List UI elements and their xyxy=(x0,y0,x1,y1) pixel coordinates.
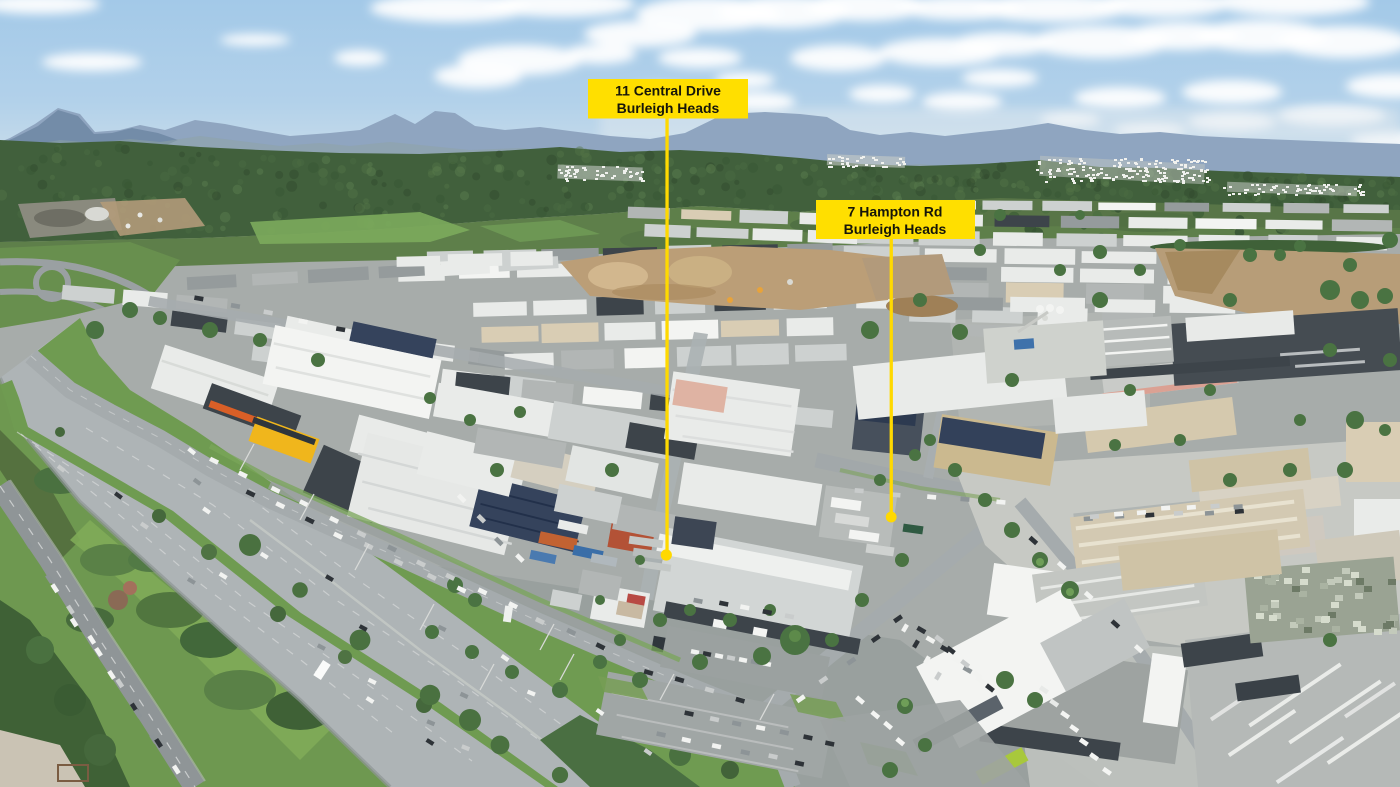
svg-text:Burleigh Heads: Burleigh Heads xyxy=(844,221,947,237)
svg-text:Burleigh Heads: Burleigh Heads xyxy=(617,100,720,116)
svg-text:11 Central Drive: 11 Central Drive xyxy=(615,83,721,99)
svg-text:7 Hampton Rd: 7 Hampton Rd xyxy=(848,204,943,220)
